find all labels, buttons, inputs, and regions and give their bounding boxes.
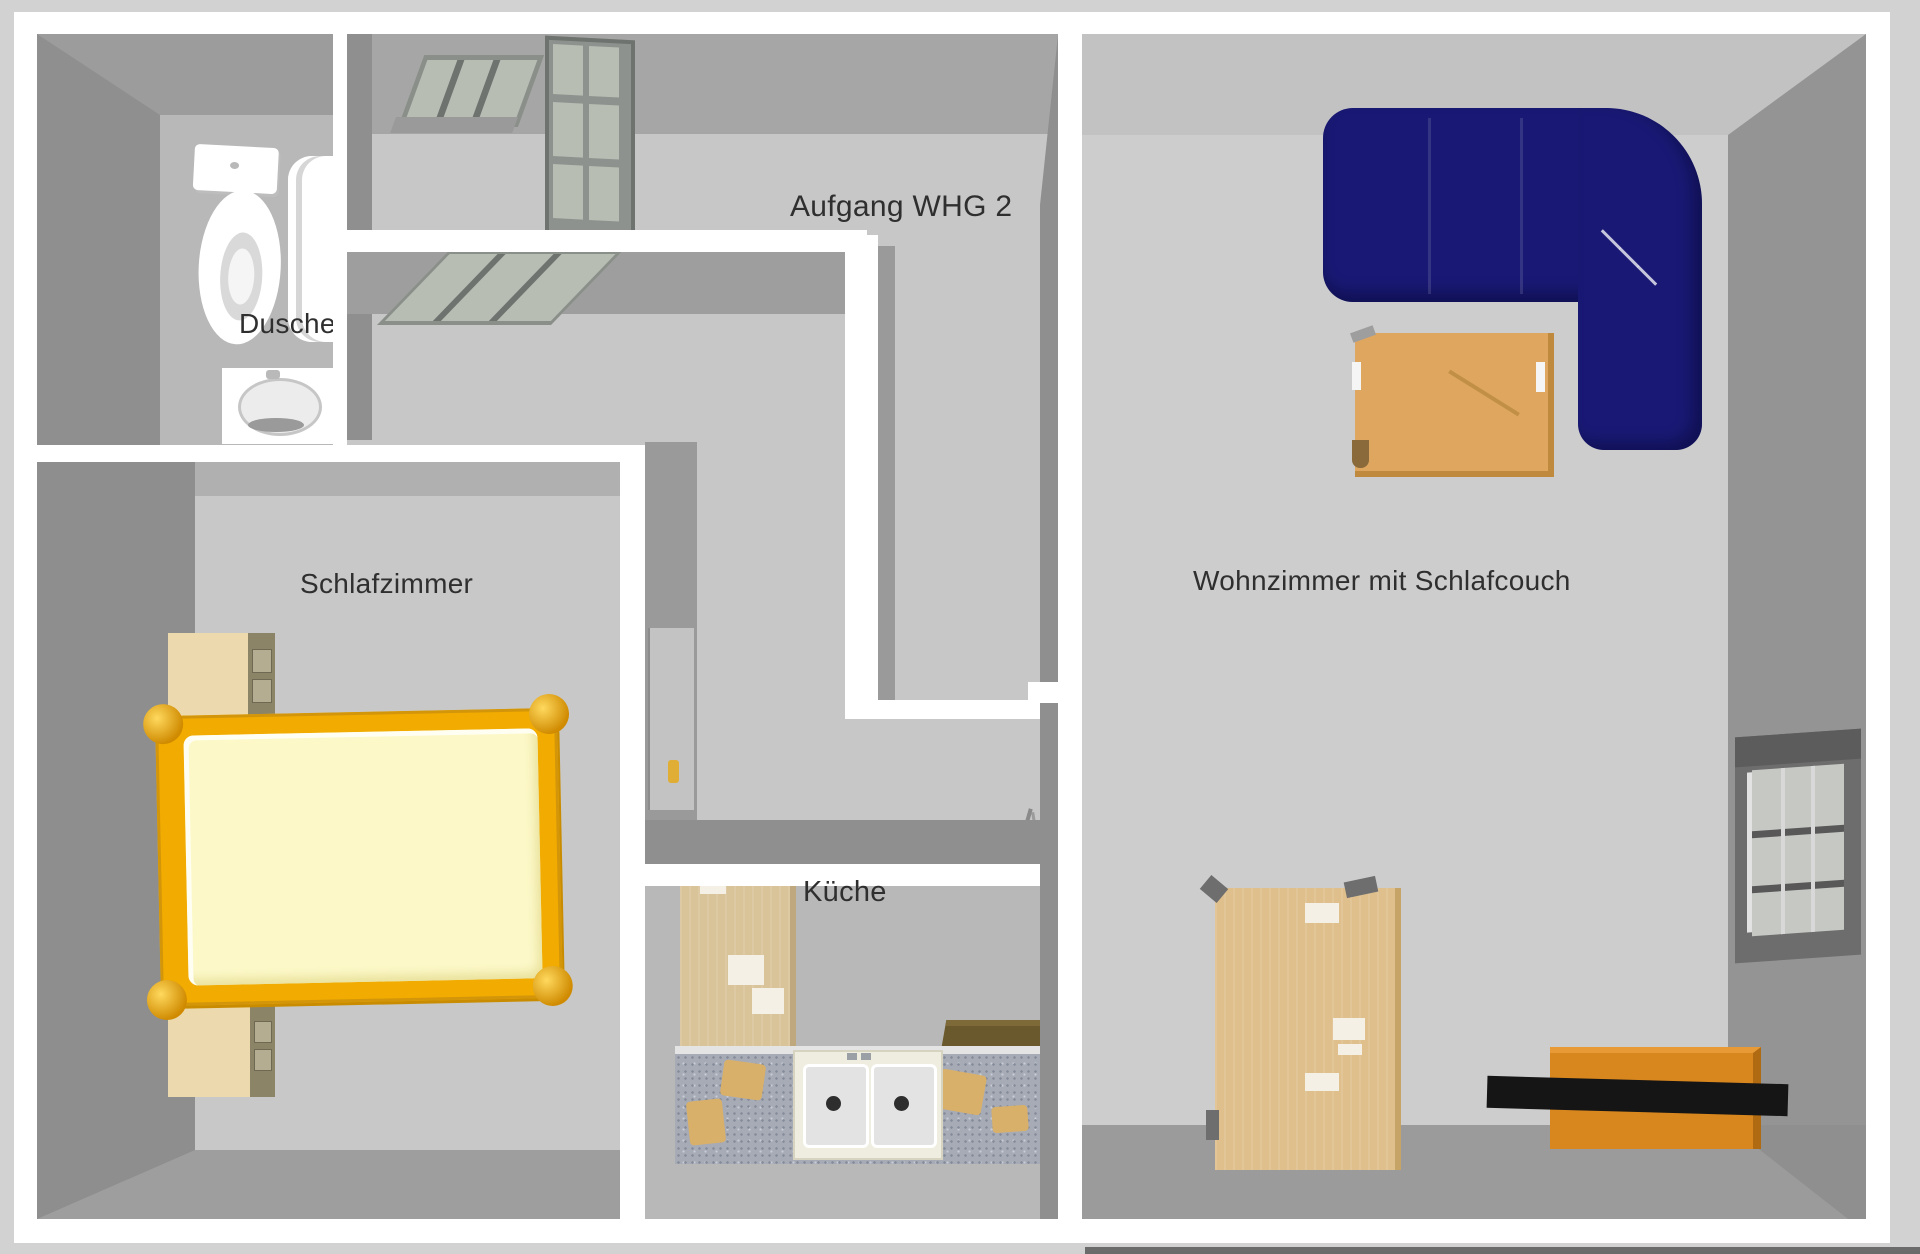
living-room-right-wall-face	[1728, 135, 1866, 1125]
sink-faucet	[861, 1053, 871, 1060]
bed-mattress	[183, 728, 542, 985]
sink-drain	[826, 1096, 841, 1111]
skylight-mullion	[489, 254, 562, 321]
nightstand-drawer	[254, 1021, 272, 1043]
room-label-living-room: Wohnzimmer mit Schlafcouch	[1193, 565, 1571, 597]
window-pane	[553, 164, 583, 220]
wall-corridor-west-face	[878, 246, 895, 702]
wall-outer-top	[14, 12, 1890, 34]
sink-faucet	[847, 1053, 857, 1060]
skylight-mullion	[433, 254, 506, 321]
wardrobe-highlight	[1333, 1018, 1365, 1040]
washbasin-tap	[266, 370, 280, 379]
room-label-bathroom: Dusche	[239, 308, 333, 342]
wardrobe-highlight	[1338, 1044, 1362, 1055]
wall-outer-bottom	[14, 1219, 1890, 1243]
window-jamb-highlight	[1747, 772, 1752, 932]
wall-corridor-upper	[347, 230, 867, 252]
window-pane	[553, 44, 583, 96]
toilet-tank	[193, 144, 279, 194]
wardrobe-highlight	[1305, 1073, 1339, 1091]
counter-item	[991, 1105, 1029, 1133]
wall-outer-left	[14, 12, 37, 1243]
skylight-mullion	[435, 60, 465, 122]
bed	[155, 708, 563, 1006]
kitchen-top-wall-face	[633, 820, 1045, 864]
window-pane	[589, 104, 619, 160]
table-edge-notch	[1352, 362, 1361, 390]
sink-drain	[894, 1096, 909, 1111]
wall-corridor-west	[845, 235, 878, 719]
table-grain-line	[1448, 370, 1520, 417]
coffee-table	[1355, 333, 1554, 477]
small-decor-object	[1352, 440, 1369, 468]
table-edge-notch	[1536, 362, 1545, 392]
room-label-bedroom: Schlafzimmer	[300, 568, 473, 600]
cabinet-highlight	[752, 988, 784, 1014]
room-label-stairway: Aufgang WHG 2	[790, 190, 1012, 224]
window-mullion-vertical	[1811, 766, 1815, 932]
window-glass	[1752, 764, 1844, 936]
nightstand	[168, 633, 275, 718]
wall-bedroom-right	[620, 445, 645, 1233]
nightstand-drawer	[252, 649, 272, 673]
living-room-window	[1735, 729, 1861, 964]
wall-main-vertical	[1058, 34, 1082, 1243]
nightstand-top	[168, 633, 248, 718]
washbasin	[222, 368, 333, 444]
bedroom-top-shade	[195, 462, 620, 496]
roof-window-vertical	[545, 36, 635, 241]
bottom-edge-bar	[1085, 1247, 1920, 1254]
window-pane	[589, 166, 619, 222]
wall-outer-right	[1866, 12, 1890, 1243]
cabinet-highlight	[728, 955, 764, 985]
nightstand-top	[168, 1003, 250, 1097]
wardrobe-foot	[1206, 1110, 1219, 1140]
nightstand-side	[248, 633, 275, 718]
wall-bedroom-top	[14, 445, 632, 462]
wardrobe-highlight	[1305, 903, 1339, 923]
skylight-frame-sill	[390, 117, 518, 133]
entrance-threshold	[1028, 682, 1060, 703]
counter-item	[720, 1059, 767, 1100]
sofa-seam	[1520, 118, 1523, 294]
nightstand-drawer	[252, 679, 272, 703]
kitchen-cabinet	[680, 878, 796, 1050]
window-mullion-vertical	[1781, 768, 1785, 934]
skylight-mullion	[471, 60, 501, 122]
counter-item	[686, 1098, 726, 1146]
sink-unit	[793, 1050, 943, 1160]
wall-main-left-face	[1040, 205, 1058, 1219]
nightstand-drawer	[254, 1049, 272, 1071]
window-pane	[589, 46, 619, 98]
sofa-corner-section	[1578, 108, 1702, 450]
wall-bathroom-right	[333, 34, 347, 462]
washbasin-shadow	[248, 418, 304, 432]
wardrobe	[1215, 888, 1401, 1170]
door-handle	[668, 760, 679, 783]
room-label-kitchen: Küche	[803, 876, 887, 909]
floor-plan: Dusche Aufgang WHG 2 Schlafzimmer Küche …	[0, 0, 1920, 1254]
window-pane	[553, 102, 583, 158]
sofa-seam	[1428, 118, 1431, 294]
